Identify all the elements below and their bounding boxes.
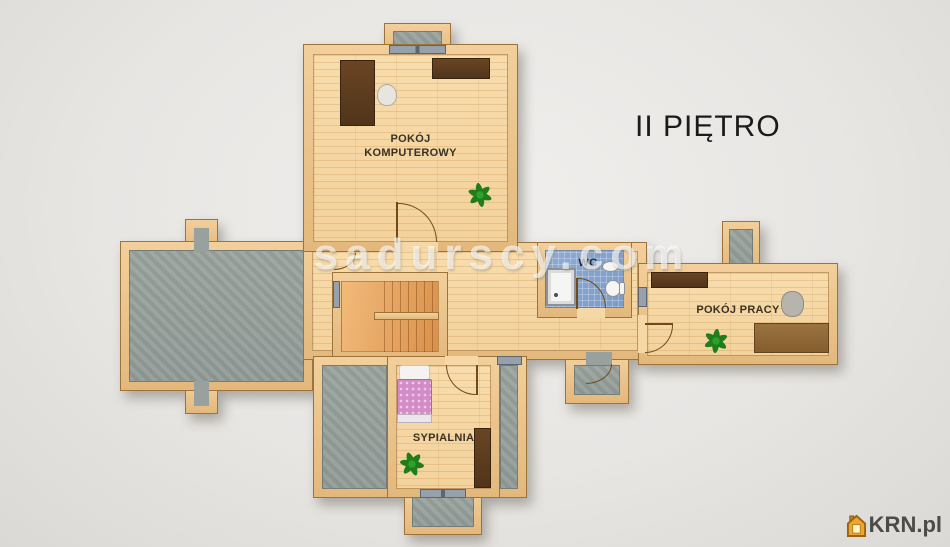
bed-duvet xyxy=(397,379,432,419)
bedroom-window xyxy=(420,489,466,498)
plant-icon xyxy=(702,327,730,355)
krn-logo-text: KRN.pl xyxy=(869,512,942,538)
house-icon xyxy=(846,513,867,538)
plant-icon xyxy=(398,450,426,478)
terrace-notch-bottom-opening xyxy=(194,381,209,406)
stairs-upper-flight xyxy=(384,281,439,312)
bedroom-bottom-balcony-floor xyxy=(412,497,474,527)
bed-sheet-fold xyxy=(397,414,432,423)
bedroom-label: SYPIALNIA xyxy=(396,432,491,444)
watermark: sadurscy.com xyxy=(27,230,950,280)
computer-room-window xyxy=(389,45,446,54)
computer-chair xyxy=(377,84,397,106)
bedroom-left-balcony-floor xyxy=(322,365,387,489)
krn-logo: KRN.pl xyxy=(846,512,942,538)
stairs-lower-flight xyxy=(384,320,439,352)
computer-desk xyxy=(340,60,375,126)
stairs-railing-wall xyxy=(374,312,439,320)
corridor-window xyxy=(497,356,522,365)
computer-sideboard xyxy=(432,58,490,79)
computer-room-label-line1: POKÓJ xyxy=(313,133,508,145)
bedroom-door-opening xyxy=(445,356,478,365)
bed xyxy=(397,363,432,424)
wc-door-opening xyxy=(577,308,605,318)
bedroom-right-balcony-floor xyxy=(500,365,518,489)
bedroom-door-leaf xyxy=(476,365,478,395)
office-desk xyxy=(754,323,829,353)
computer-room-label-line2: KOMPUTEROWY xyxy=(313,147,508,159)
shower-drain xyxy=(554,293,558,297)
floor-plan-image: POKÓJ KOMPUTEROWY WC POKÓJ PRACY xyxy=(0,0,950,547)
bed-pillow xyxy=(399,365,430,380)
office-window xyxy=(638,287,647,307)
office-label: POKÓJ PRACY xyxy=(647,304,829,316)
toilet-tank xyxy=(619,282,625,295)
plant-icon xyxy=(466,181,494,209)
stairs-window xyxy=(333,281,340,308)
floor-title: II PIĘTRO xyxy=(635,110,781,144)
